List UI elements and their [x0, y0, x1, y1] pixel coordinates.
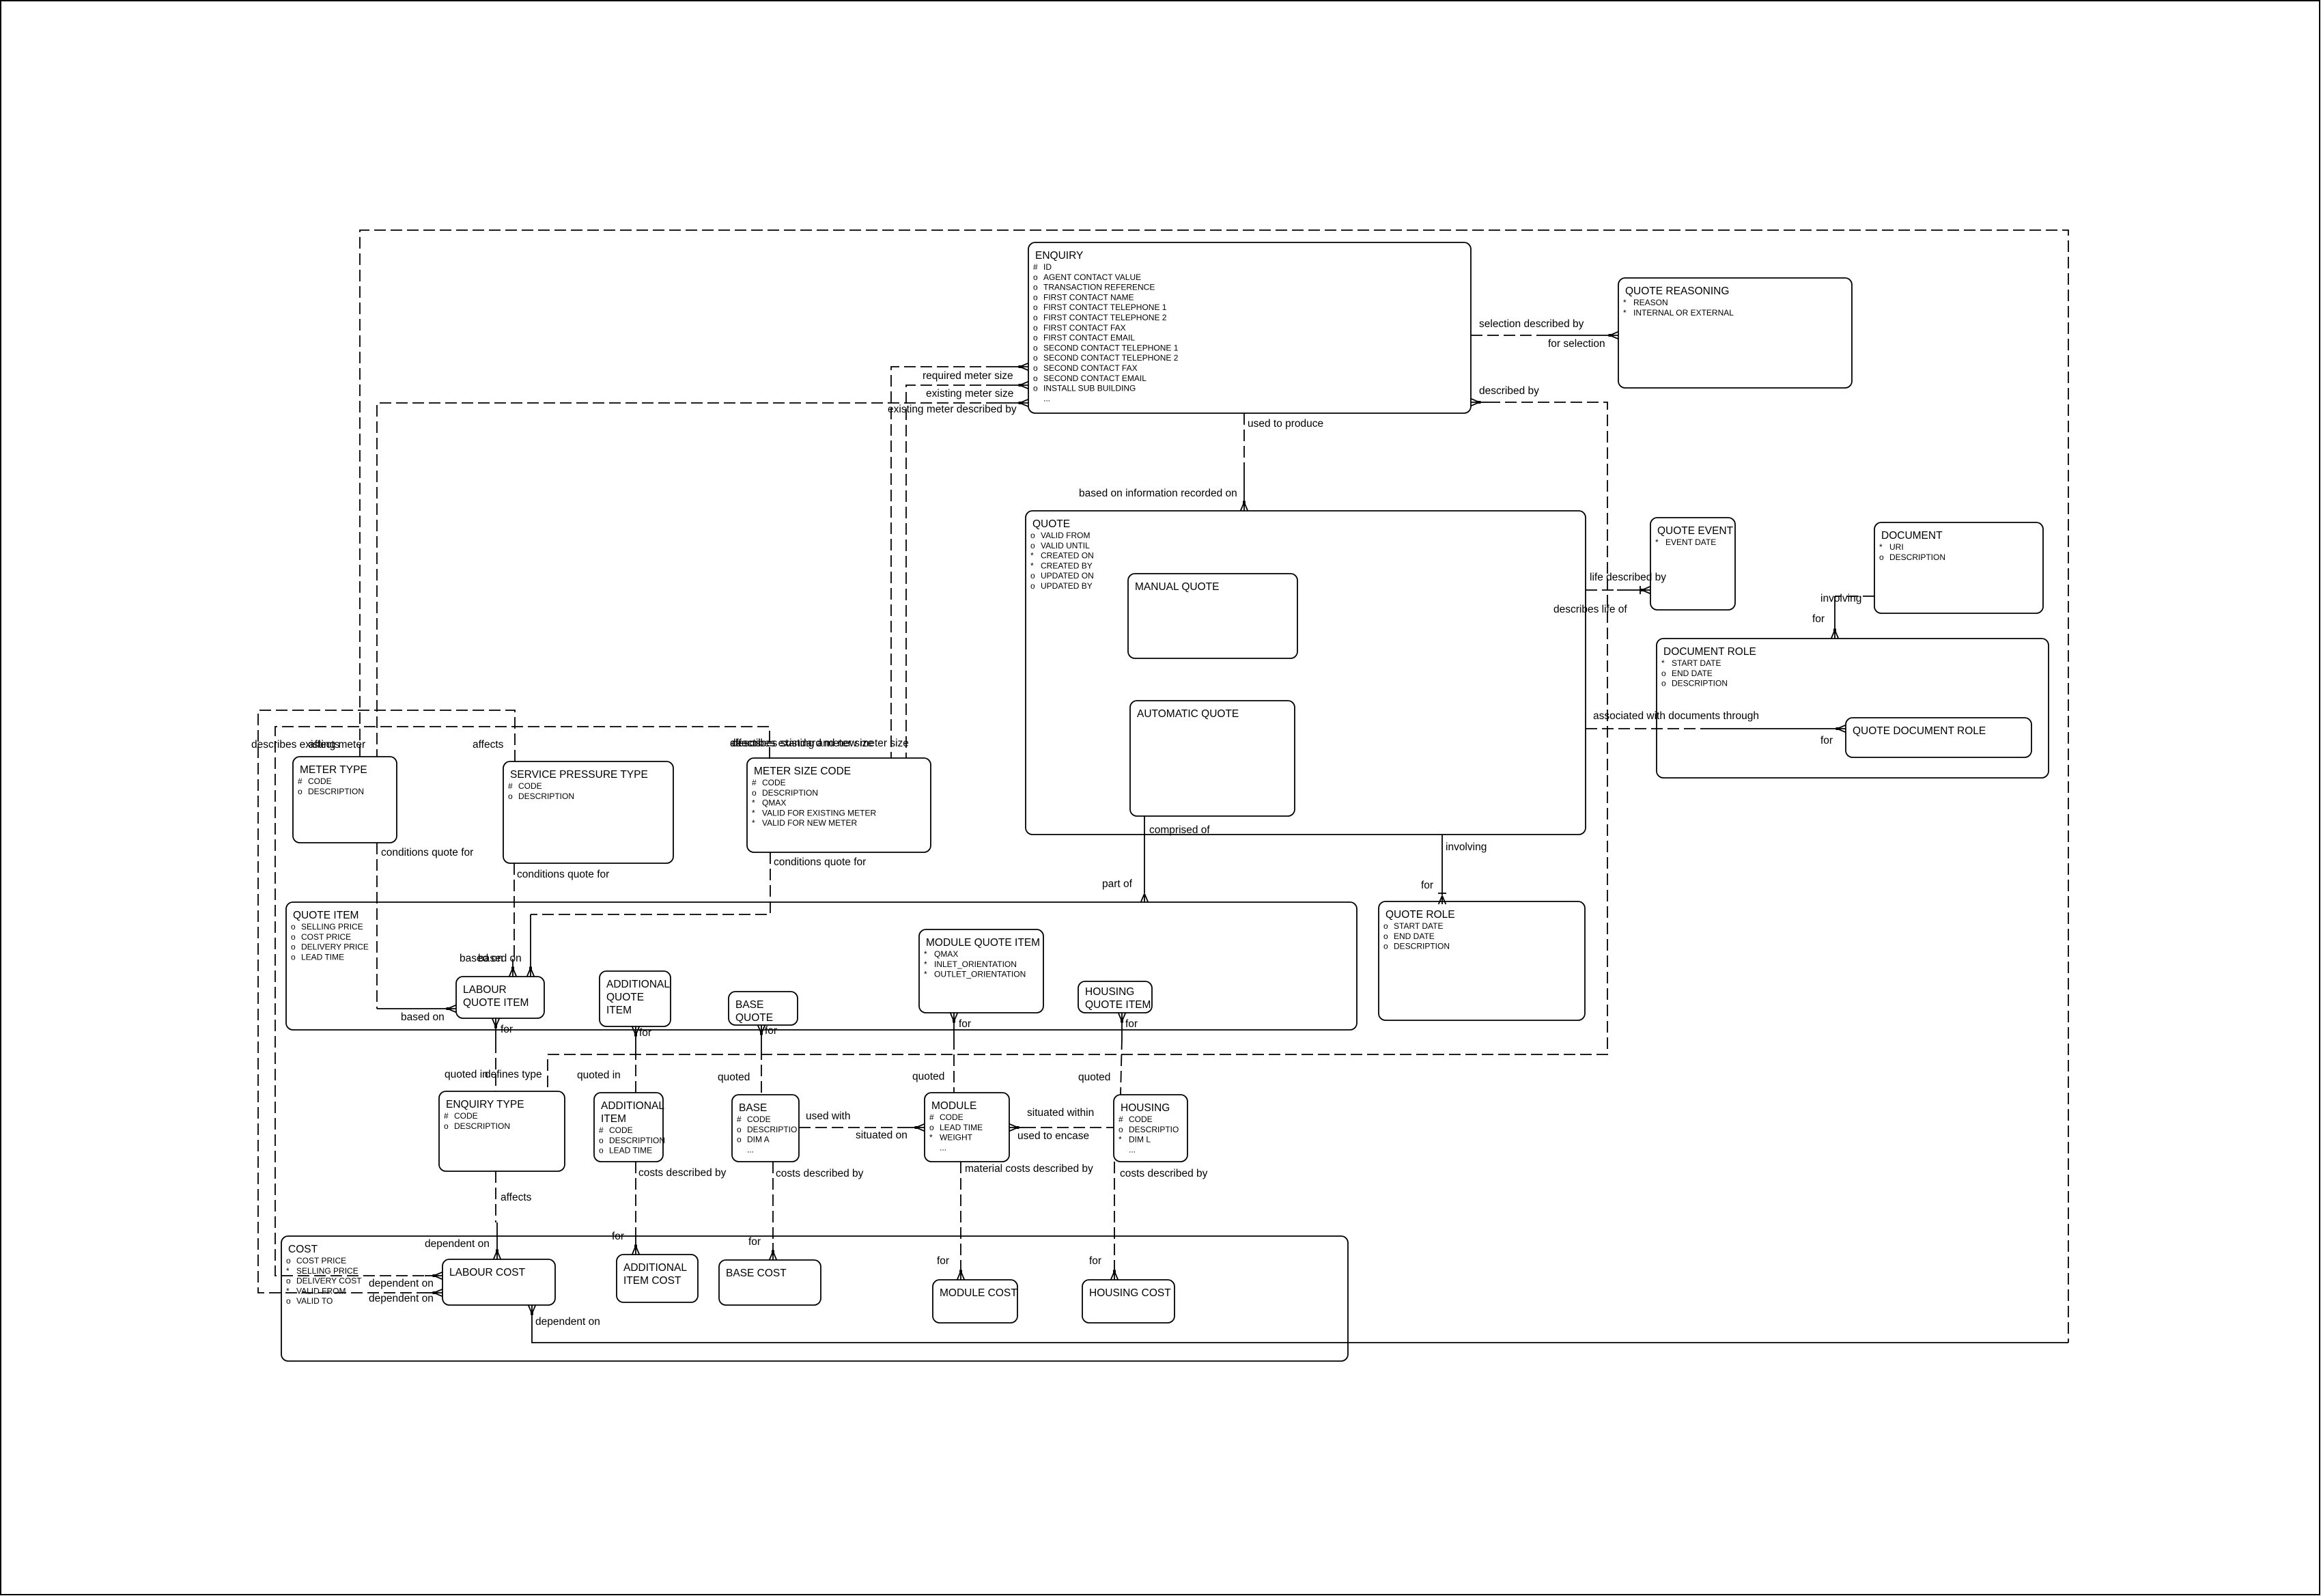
- svg-text:LABOUR: LABOUR: [463, 984, 507, 996]
- svg-text:o: o: [1033, 353, 1038, 363]
- svg-text:*: *: [1030, 561, 1034, 570]
- svg-text:DESCRIPTION: DESCRIPTION: [454, 1121, 510, 1131]
- svg-text:LEAD TIME: LEAD TIME: [301, 952, 344, 962]
- svg-text:*: *: [1661, 658, 1665, 668]
- svg-text:*: *: [1879, 542, 1883, 552]
- svg-text:o: o: [291, 932, 296, 942]
- svg-text:VALID TO: VALID TO: [296, 1296, 333, 1306]
- svg-text:o: o: [286, 1276, 291, 1286]
- svg-text:o: o: [1033, 292, 1038, 302]
- svg-text:*: *: [1655, 537, 1659, 547]
- svg-text:existing meter described by: existing meter described by: [888, 404, 1017, 415]
- svg-text:LABOUR COST: LABOUR COST: [449, 1267, 526, 1278]
- svg-text:conditions quote for: conditions quote for: [517, 869, 609, 880]
- svg-text:for: for: [1812, 613, 1825, 625]
- svg-text:o: o: [286, 1256, 291, 1265]
- svg-text:INTERNAL OR EXTERNAL: INTERNAL OR EXTERNAL: [1633, 308, 1734, 318]
- svg-text:DIM A: DIM A: [747, 1135, 770, 1145]
- svg-text:QUOTE ITEM: QUOTE ITEM: [293, 910, 358, 921]
- svg-text:VALID FROM: VALID FROM: [1041, 531, 1090, 540]
- svg-text:o: o: [1033, 323, 1038, 333]
- svg-text:CODE: CODE: [762, 778, 786, 787]
- svg-text:for: for: [748, 1236, 761, 1248]
- svg-text:ENQUIRY: ENQUIRY: [1035, 250, 1083, 262]
- svg-text:*: *: [752, 818, 755, 828]
- svg-text:UPDATED ON: UPDATED ON: [1041, 571, 1094, 580]
- svg-text:#: #: [929, 1112, 934, 1122]
- svg-text:affects: affects: [501, 1192, 532, 1203]
- svg-text:quoted in: quoted in: [445, 1069, 488, 1080]
- svg-text:used to encase: used to encase: [1017, 1130, 1089, 1142]
- svg-text:#: #: [599, 1125, 604, 1135]
- svg-text:affects: affects: [473, 739, 504, 751]
- svg-text:*: *: [1030, 551, 1034, 561]
- svg-text:...: ...: [747, 1145, 754, 1154]
- svg-text:SECOND CONTACT FAX: SECOND CONTACT FAX: [1043, 363, 1138, 373]
- svg-text:quoted: quoted: [912, 1071, 944, 1082]
- svg-text:for: for: [959, 1018, 971, 1030]
- svg-text:dependent on: dependent on: [369, 1293, 434, 1304]
- svg-text:COST PRICE: COST PRICE: [296, 1256, 346, 1265]
- svg-text:QUOTE DOCUMENT ROLE: QUOTE DOCUMENT ROLE: [1853, 725, 1986, 737]
- svg-text:comprised of: comprised of: [1149, 824, 1210, 836]
- svg-text:costs described by: costs described by: [1120, 1168, 1208, 1179]
- svg-text:o: o: [291, 942, 296, 952]
- svg-text:CODE: CODE: [518, 781, 542, 791]
- svg-text:QUOTE: QUOTE: [1032, 518, 1070, 530]
- svg-text:o: o: [1030, 571, 1035, 580]
- svg-text:ITEM COST: ITEM COST: [623, 1275, 681, 1287]
- svg-text:for selection: for selection: [1548, 338, 1605, 350]
- svg-text:FIRST CONTACT NAME: FIRST CONTACT NAME: [1043, 292, 1134, 302]
- svg-text:for: for: [501, 1024, 513, 1035]
- svg-text:material costs described by: material costs described by: [965, 1163, 1093, 1175]
- svg-text:o: o: [737, 1135, 742, 1145]
- svg-text:dependent on: dependent on: [369, 1278, 434, 1289]
- svg-text:o: o: [1033, 343, 1038, 352]
- svg-text:#: #: [1119, 1115, 1123, 1124]
- svg-text:QMAX: QMAX: [934, 949, 958, 959]
- svg-text:situated on: situated on: [856, 1130, 908, 1141]
- svg-text:DESCRIPTION: DESCRIPTION: [609, 1136, 665, 1145]
- svg-text:#: #: [444, 1111, 449, 1121]
- svg-text:existing meter size: existing meter size: [926, 388, 1013, 400]
- svg-text:costs described by: costs described by: [776, 1168, 864, 1179]
- svg-text:END DATE: END DATE: [1394, 932, 1435, 941]
- svg-text:described by: described by: [1479, 385, 1539, 397]
- svg-text:describes life of: describes life of: [1553, 604, 1627, 615]
- svg-text:QUOTE REASONING: QUOTE REASONING: [1625, 285, 1729, 297]
- svg-text:SECOND CONTACT TELEPHONE 1: SECOND CONTACT TELEPHONE 1: [1043, 343, 1179, 352]
- svg-text:#: #: [1033, 262, 1038, 272]
- svg-text:*: *: [1623, 308, 1627, 318]
- svg-text:quoted: quoted: [1078, 1072, 1110, 1083]
- svg-text:for: for: [639, 1027, 651, 1039]
- svg-text:life described by: life described by: [1590, 572, 1666, 583]
- svg-text:o: o: [1033, 333, 1038, 343]
- svg-text:o: o: [1879, 552, 1884, 562]
- svg-text:QMAX: QMAX: [762, 798, 786, 808]
- svg-text:#: #: [298, 776, 303, 786]
- svg-text:used to produce: used to produce: [1248, 418, 1323, 430]
- svg-text:CODE: CODE: [609, 1125, 633, 1135]
- svg-text:DOCUMENT: DOCUMENT: [1881, 530, 1943, 542]
- svg-text:o: o: [1033, 313, 1038, 322]
- svg-text:WEIGHT: WEIGHT: [940, 1133, 973, 1143]
- svg-text:o: o: [737, 1125, 742, 1134]
- svg-text:START DATE: START DATE: [1672, 658, 1721, 668]
- svg-text:for: for: [1820, 735, 1833, 746]
- svg-text:involving: involving: [1446, 841, 1487, 853]
- svg-text:DOCUMENT ROLE: DOCUMENT ROLE: [1663, 646, 1756, 658]
- svg-text:conditions quote for: conditions quote for: [381, 847, 473, 858]
- svg-text:o: o: [1383, 921, 1388, 931]
- svg-text:QUOTE ITEM: QUOTE ITEM: [1085, 999, 1151, 1011]
- svg-text:CODE: CODE: [747, 1115, 771, 1124]
- svg-text:involving: involving: [1820, 593, 1861, 604]
- svg-text:HOUSING COST: HOUSING COST: [1089, 1287, 1171, 1299]
- svg-text:o: o: [1661, 669, 1666, 678]
- svg-text:DESCRIPTION: DESCRIPTION: [518, 792, 574, 801]
- svg-text:SELLING PRICE: SELLING PRICE: [301, 922, 363, 932]
- svg-text:INLET_ORIENTATION: INLET_ORIENTATION: [934, 960, 1017, 969]
- svg-text:DESCRIPTION: DESCRIPTION: [1672, 679, 1728, 688]
- svg-text:END DATE: END DATE: [1672, 669, 1713, 678]
- svg-text:VALID FOR NEW METER: VALID FOR NEW METER: [762, 818, 857, 828]
- svg-text:used with: used with: [806, 1110, 850, 1122]
- svg-text:QUOTE ITEM: QUOTE ITEM: [463, 997, 529, 1009]
- svg-text:o: o: [1033, 384, 1038, 393]
- svg-text:o: o: [1383, 942, 1388, 951]
- svg-text:o: o: [929, 1123, 934, 1132]
- svg-text:o: o: [1033, 272, 1038, 282]
- svg-text:FIRST CONTACT TELEPHONE 1: FIRST CONTACT TELEPHONE 1: [1043, 303, 1167, 312]
- svg-text:...: ...: [1043, 393, 1050, 403]
- svg-text:MODULE COST: MODULE COST: [940, 1287, 1017, 1299]
- svg-text:dependent on: dependent on: [425, 1238, 490, 1250]
- svg-text:OUTLET_ORIENTATION: OUTLET_ORIENTATION: [934, 970, 1026, 979]
- svg-text:for: for: [1125, 1018, 1138, 1030]
- svg-text:CODE: CODE: [308, 776, 332, 786]
- svg-text:SELLING PRICE: SELLING PRICE: [296, 1266, 358, 1276]
- svg-text:QUOTE: QUOTE: [735, 1012, 773, 1024]
- svg-text:DESCRIPTIO: DESCRIPTIO: [1129, 1125, 1179, 1134]
- svg-text:CREATED ON: CREATED ON: [1041, 551, 1094, 561]
- svg-text:...: ...: [1129, 1145, 1136, 1154]
- svg-text:DELIVERY PRICE: DELIVERY PRICE: [301, 942, 369, 952]
- svg-text:HOUSING: HOUSING: [1121, 1102, 1170, 1114]
- svg-text:ADDITIONAL: ADDITIONAL: [601, 1100, 664, 1112]
- svg-text:METER SIZE CODE: METER SIZE CODE: [754, 766, 851, 777]
- svg-text:QUOTE EVENT: QUOTE EVENT: [1657, 525, 1734, 537]
- svg-text:CODE: CODE: [454, 1111, 478, 1121]
- svg-text:QUOTE: QUOTE: [606, 992, 644, 1003]
- svg-text:DESCRIPTION: DESCRIPTION: [762, 788, 818, 798]
- svg-text:for: for: [1089, 1255, 1101, 1267]
- svg-text:o: o: [752, 788, 757, 798]
- svg-text:*: *: [286, 1266, 290, 1276]
- svg-text:ADDITIONAL: ADDITIONAL: [623, 1262, 687, 1274]
- svg-text:o: o: [1033, 363, 1038, 373]
- svg-text:o: o: [1033, 374, 1038, 383]
- svg-text:ITEM: ITEM: [601, 1113, 626, 1125]
- svg-text:COST PRICE: COST PRICE: [301, 932, 351, 942]
- svg-text:EVENT DATE: EVENT DATE: [1665, 537, 1716, 547]
- svg-text:o: o: [599, 1146, 604, 1156]
- svg-text:*: *: [1119, 1135, 1122, 1145]
- svg-text:o: o: [1661, 679, 1666, 688]
- svg-text:VALID UNTIL: VALID UNTIL: [1041, 541, 1090, 550]
- svg-text:QUOTE ROLE: QUOTE ROLE: [1385, 909, 1455, 921]
- svg-text:costs described by: costs described by: [638, 1167, 727, 1179]
- svg-text:...: ...: [940, 1143, 946, 1152]
- svg-text:LEAD TIME: LEAD TIME: [940, 1123, 983, 1132]
- svg-text:*: *: [924, 960, 927, 969]
- svg-text:DESCRIPTION: DESCRIPTION: [1394, 942, 1450, 951]
- svg-text:MODULE: MODULE: [931, 1100, 976, 1112]
- svg-text:MODULE QUOTE ITEM: MODULE QUOTE ITEM: [926, 937, 1040, 949]
- svg-text:ITEM: ITEM: [606, 1005, 632, 1016]
- svg-text:o: o: [1030, 581, 1035, 591]
- svg-text:conditions quote for: conditions quote for: [774, 856, 866, 868]
- svg-text:defines type: defines type: [485, 1069, 542, 1080]
- svg-text:based on: based on: [478, 953, 522, 964]
- svg-text:ADDITIONAL: ADDITIONAL: [606, 979, 670, 990]
- svg-text:ENQUIRY TYPE: ENQUIRY TYPE: [446, 1099, 524, 1110]
- svg-text:affects: affects: [309, 739, 340, 751]
- svg-text:VALID FOR EXISTING METER: VALID FOR EXISTING METER: [762, 808, 876, 817]
- svg-text:o: o: [291, 952, 296, 962]
- svg-text:o: o: [1033, 283, 1038, 292]
- svg-text:required meter size: required meter size: [923, 370, 1013, 382]
- svg-text:REASON: REASON: [1633, 298, 1668, 307]
- svg-text:DIM L: DIM L: [1129, 1135, 1151, 1145]
- svg-text:o: o: [298, 787, 303, 796]
- svg-text:o: o: [508, 792, 513, 801]
- svg-text:DESCRIPTIO: DESCRIPTIO: [747, 1125, 797, 1134]
- svg-text:VALID FROM: VALID FROM: [296, 1286, 346, 1296]
- svg-text:o: o: [291, 922, 296, 932]
- svg-text:BASE: BASE: [739, 1102, 767, 1114]
- svg-text:FIRST CONTACT FAX: FIRST CONTACT FAX: [1043, 323, 1126, 333]
- svg-text:AUTOMATIC QUOTE: AUTOMATIC QUOTE: [1137, 708, 1239, 720]
- svg-text:for: for: [1421, 880, 1433, 891]
- svg-text:UPDATED BY: UPDATED BY: [1041, 581, 1093, 591]
- svg-text:#: #: [752, 778, 757, 787]
- svg-text:TRANSACTION REFERENCE: TRANSACTION REFERENCE: [1043, 283, 1155, 292]
- svg-text:o: o: [1119, 1125, 1123, 1134]
- svg-text:ID: ID: [1043, 262, 1052, 272]
- svg-text:DESCRIPTION: DESCRIPTION: [1889, 552, 1945, 562]
- svg-text:#: #: [737, 1115, 742, 1124]
- svg-text:o: o: [1030, 541, 1035, 550]
- svg-text:*: *: [929, 1133, 933, 1143]
- svg-text:o: o: [286, 1296, 291, 1306]
- svg-text:START DATE: START DATE: [1394, 921, 1443, 931]
- svg-text:COST: COST: [288, 1244, 318, 1255]
- svg-text:SECOND CONTACT EMAIL: SECOND CONTACT EMAIL: [1043, 374, 1147, 383]
- svg-text:METER TYPE: METER TYPE: [300, 764, 367, 776]
- svg-text:based on: based on: [401, 1011, 445, 1023]
- svg-text:SERVICE PRESSURE TYPE: SERVICE PRESSURE TYPE: [510, 769, 648, 781]
- svg-text:*: *: [752, 798, 755, 808]
- svg-text:*: *: [1623, 298, 1627, 307]
- svg-text:DELIVERY COST: DELIVERY COST: [296, 1276, 362, 1286]
- svg-text:*: *: [924, 949, 927, 959]
- svg-text:CODE: CODE: [1129, 1115, 1153, 1124]
- svg-text:MANUAL QUOTE: MANUAL QUOTE: [1135, 581, 1219, 593]
- svg-text:URI: URI: [1889, 542, 1904, 552]
- svg-text:dependent on: dependent on: [535, 1316, 600, 1328]
- svg-text:for: for: [612, 1231, 624, 1242]
- svg-text:*: *: [924, 970, 927, 979]
- svg-text:CREATED BY: CREATED BY: [1041, 561, 1093, 570]
- svg-text:CODE: CODE: [940, 1112, 963, 1122]
- svg-text:describes existing and new met: describes existing and new meter size: [730, 738, 909, 749]
- svg-text:selection described by: selection described by: [1479, 318, 1584, 330]
- svg-text:DESCRIPTION: DESCRIPTION: [308, 787, 364, 796]
- svg-text:o: o: [1383, 932, 1388, 941]
- svg-text:based on information recorded: based on information recorded on: [1079, 488, 1237, 499]
- svg-text:for: for: [765, 1025, 777, 1037]
- svg-text:AGENT CONTACT VALUE: AGENT CONTACT VALUE: [1043, 272, 1141, 282]
- svg-text:*: *: [286, 1286, 290, 1296]
- svg-text:FIRST CONTACT EMAIL: FIRST CONTACT EMAIL: [1043, 333, 1135, 343]
- svg-text:*: *: [752, 808, 755, 817]
- svg-text:o: o: [1030, 531, 1035, 540]
- svg-text:LEAD TIME: LEAD TIME: [609, 1146, 652, 1156]
- svg-text:situated within: situated within: [1027, 1107, 1094, 1119]
- svg-text:SECOND CONTACT TELEPHONE 2: SECOND CONTACT TELEPHONE 2: [1043, 353, 1179, 363]
- svg-text:quoted in: quoted in: [577, 1069, 621, 1081]
- svg-text:o: o: [599, 1136, 604, 1145]
- svg-text:for: for: [937, 1255, 949, 1267]
- svg-text:part of: part of: [1102, 878, 1133, 890]
- svg-text:BASE: BASE: [735, 999, 763, 1011]
- svg-text:associated with documents thro: associated with documents through: [1593, 710, 1759, 722]
- svg-text:o: o: [444, 1121, 449, 1131]
- svg-text:#: #: [508, 781, 513, 791]
- svg-text:o: o: [1033, 303, 1038, 312]
- svg-text:HOUSING: HOUSING: [1085, 986, 1134, 998]
- svg-text:INSTALL SUB BUILDING: INSTALL SUB BUILDING: [1043, 384, 1136, 393]
- svg-text:FIRST CONTACT TELEPHONE 2: FIRST CONTACT TELEPHONE 2: [1043, 313, 1167, 322]
- svg-text:BASE COST: BASE COST: [726, 1268, 787, 1279]
- svg-text:quoted: quoted: [718, 1072, 750, 1083]
